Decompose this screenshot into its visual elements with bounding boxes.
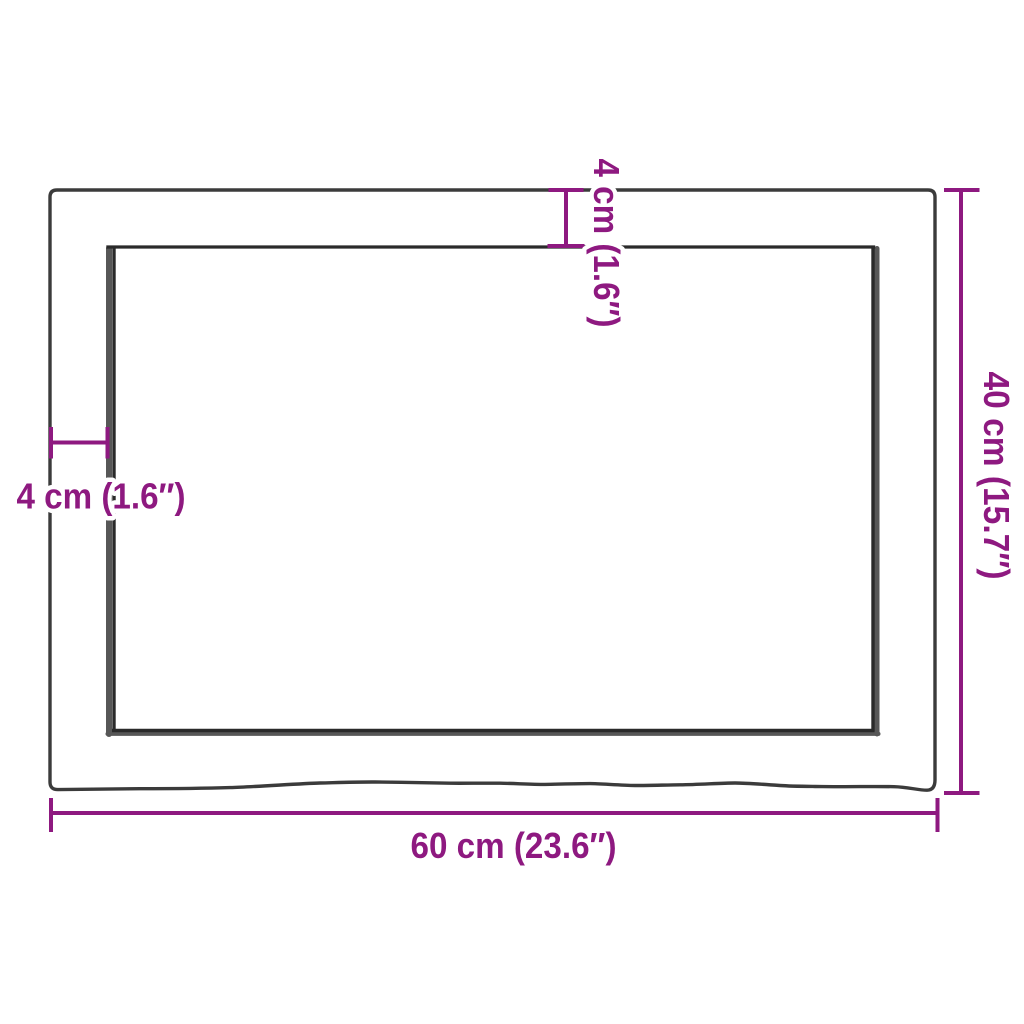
svg-text:40 cm (15.7″): 40 cm (15.7″) (976, 372, 1017, 580)
svg-text:4 cm (1.6″): 4 cm (1.6″) (17, 476, 186, 517)
svg-text:60 cm (23.6″): 60 cm (23.6″) (411, 825, 617, 866)
svg-text:4 cm (1.6″): 4 cm (1.6″) (586, 159, 627, 328)
